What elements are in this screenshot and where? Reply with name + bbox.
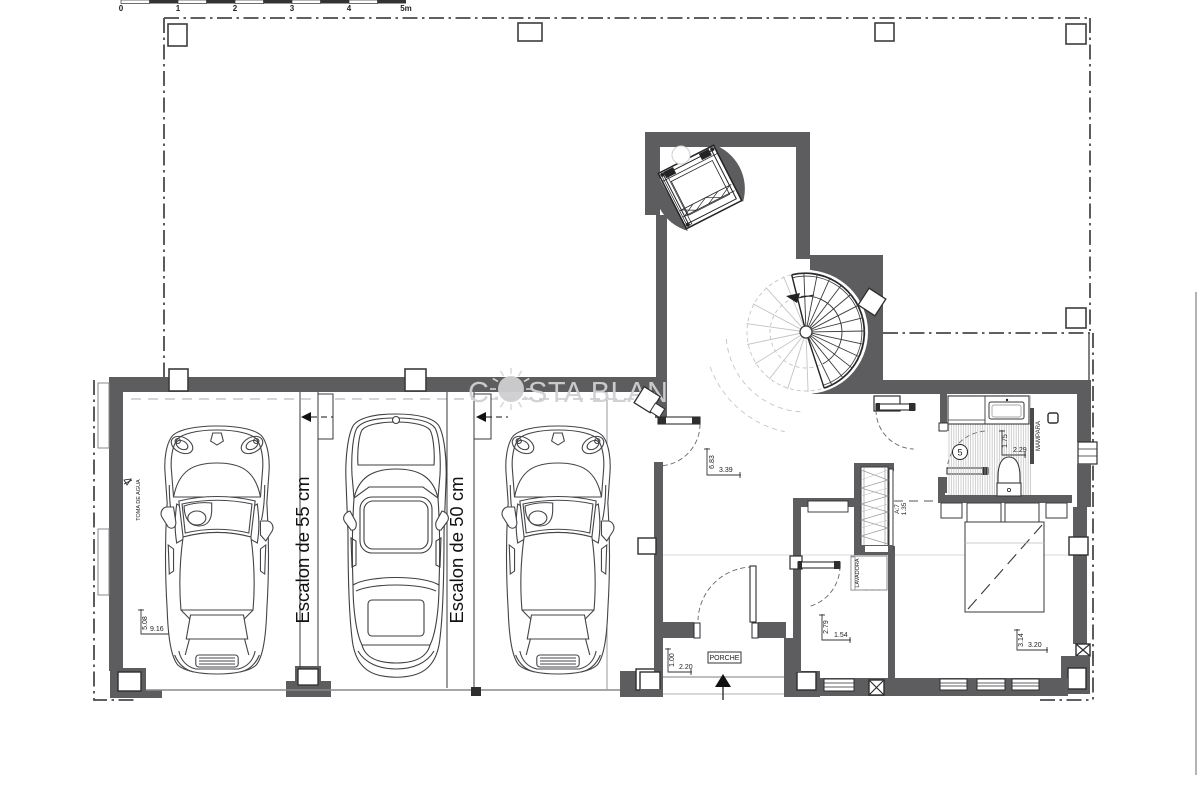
svg-text:C: C [468, 377, 489, 409]
svg-text:0: 0 [119, 4, 124, 13]
svg-text:2: 2 [233, 4, 238, 13]
svg-text:4: 4 [347, 4, 352, 13]
svg-text:3.39: 3.39 [719, 467, 733, 474]
svg-text:5m: 5m [400, 4, 412, 13]
svg-text:3.20: 3.20 [1028, 642, 1042, 649]
svg-text:TOMA DE AGUA: TOMA DE AGUA [136, 479, 142, 521]
svg-text:5.08: 5.08 [142, 616, 149, 630]
svg-text:2.79: 2.79 [823, 620, 830, 634]
svg-text:2.20: 2.20 [679, 664, 693, 671]
svg-text:2.29: 2.29 [1013, 447, 1027, 454]
svg-text:MAMPARA: MAMPARA [1036, 421, 1042, 451]
svg-text:Escalon de 50 cm: Escalon de 50 cm [446, 476, 467, 623]
svg-text:3.14: 3.14 [1018, 633, 1025, 647]
svg-text:5: 5 [957, 448, 962, 458]
svg-text:1: 1 [176, 4, 181, 13]
svg-text:1.35: 1.35 [901, 502, 908, 515]
svg-text:PORCHE: PORCHE [710, 655, 740, 662]
svg-text:LAVADORA: LAVADORA [855, 558, 861, 587]
svg-text:1.00: 1.00 [669, 653, 676, 667]
svg-text:3: 3 [290, 4, 295, 13]
svg-text:Escalon de 55 cm: Escalon de 55 cm [292, 476, 313, 623]
svg-text:1.54: 1.54 [834, 632, 848, 639]
svg-text:A:7: A:7 [894, 504, 901, 514]
svg-text:6.83: 6.83 [709, 455, 716, 469]
svg-text:1.75: 1.75 [1002, 434, 1009, 448]
svg-text:9.16: 9.16 [150, 626, 164, 633]
